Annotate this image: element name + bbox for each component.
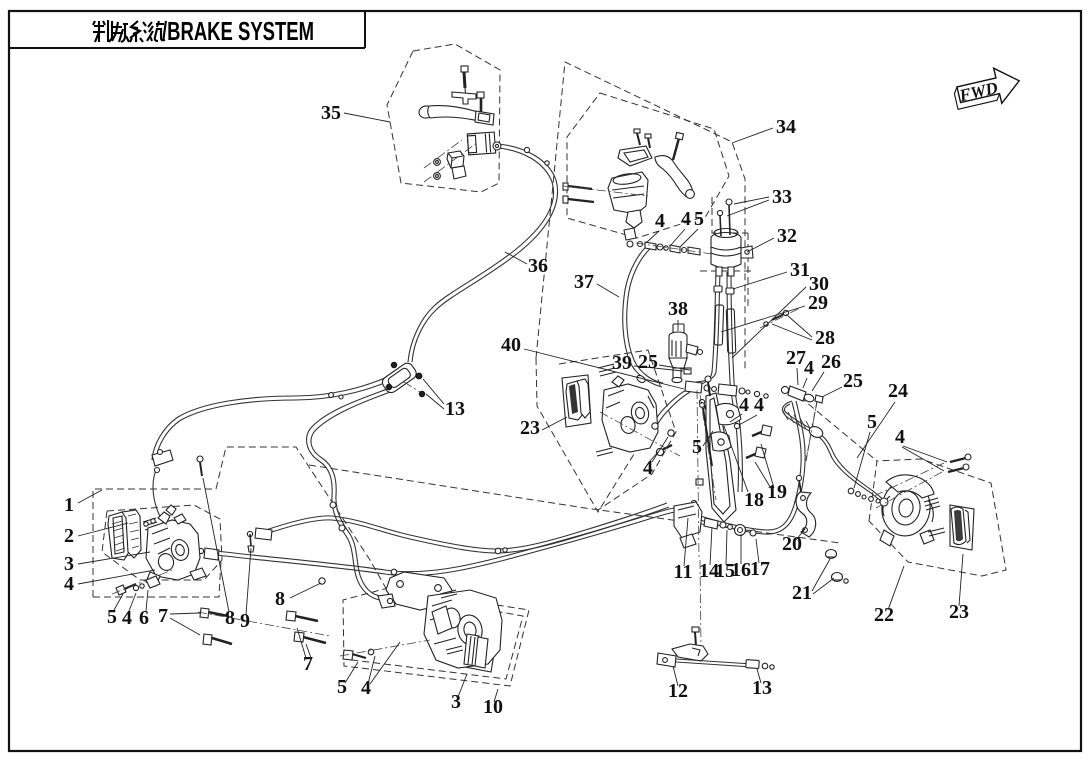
svg-text:2: 2 (64, 525, 74, 547)
svg-text:26: 26 (821, 351, 841, 373)
svg-text:13: 13 (752, 677, 772, 699)
svg-text:7: 7 (303, 653, 313, 675)
svg-text:25: 25 (638, 351, 658, 373)
svg-text:5: 5 (107, 606, 117, 628)
svg-text:4: 4 (804, 357, 814, 379)
svg-text:4: 4 (122, 607, 132, 629)
svg-text:32: 32 (777, 225, 797, 247)
svg-text:29: 29 (808, 292, 828, 314)
svg-text:8: 8 (275, 588, 285, 610)
svg-text:/BRAKE SYSTEM: /BRAKE SYSTEM (162, 16, 314, 46)
svg-text:9: 9 (240, 610, 250, 632)
svg-text:1: 1 (64, 494, 74, 516)
svg-text:37: 37 (574, 271, 594, 293)
svg-text:4: 4 (361, 677, 371, 699)
svg-text:11: 11 (674, 561, 693, 583)
svg-text:5: 5 (694, 208, 704, 230)
svg-text:25: 25 (843, 370, 863, 392)
svg-text:27: 27 (786, 347, 806, 369)
svg-text:31: 31 (790, 259, 810, 281)
svg-text:4: 4 (895, 426, 905, 448)
svg-text:13: 13 (445, 398, 465, 420)
svg-text:19: 19 (767, 481, 787, 503)
svg-text:6: 6 (139, 607, 149, 629)
svg-text:5: 5 (867, 411, 877, 433)
svg-text:35: 35 (321, 102, 341, 124)
svg-text:24: 24 (888, 380, 908, 402)
svg-text:7: 7 (158, 605, 168, 627)
svg-text:4: 4 (754, 394, 764, 416)
svg-text:22: 22 (874, 604, 894, 626)
svg-text:38: 38 (668, 298, 688, 320)
svg-text:8: 8 (225, 607, 235, 629)
svg-text:4: 4 (739, 394, 749, 416)
svg-text:3: 3 (64, 553, 74, 575)
svg-text:4: 4 (64, 573, 74, 595)
svg-text:21: 21 (792, 582, 812, 604)
svg-text:23: 23 (520, 417, 540, 439)
svg-text:5: 5 (692, 436, 702, 458)
svg-text:10: 10 (483, 696, 503, 718)
svg-text:36: 36 (528, 255, 548, 277)
svg-text:39: 39 (612, 352, 632, 374)
svg-text:4: 4 (681, 208, 691, 230)
svg-text:18: 18 (744, 489, 764, 511)
svg-text:4: 4 (655, 210, 665, 232)
svg-text:34: 34 (776, 116, 796, 138)
svg-text:40: 40 (501, 334, 521, 356)
svg-text:33: 33 (772, 186, 792, 208)
svg-text:28: 28 (815, 327, 835, 349)
svg-text:12: 12 (668, 680, 688, 702)
svg-text:5: 5 (337, 676, 347, 698)
svg-text:17: 17 (750, 558, 770, 580)
svg-text:4: 4 (643, 457, 653, 479)
